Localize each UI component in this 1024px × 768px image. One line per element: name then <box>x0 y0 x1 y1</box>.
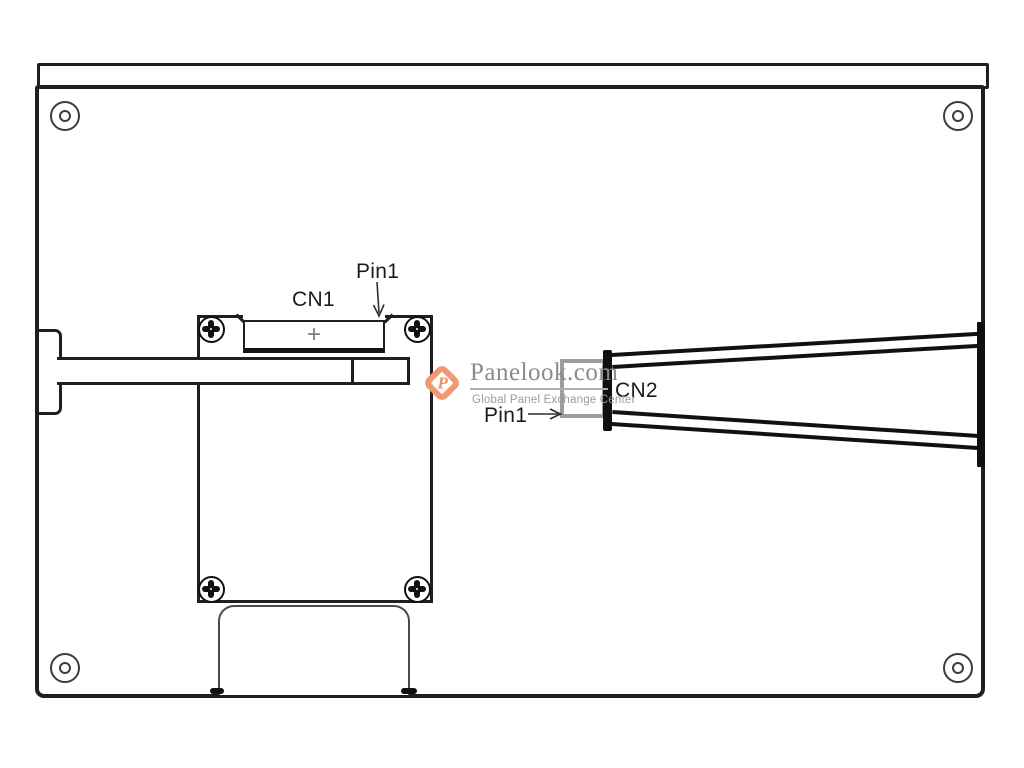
watermark-title: Panelook.com <box>470 360 618 385</box>
screw-icon <box>404 576 431 603</box>
cn1-connector: + <box>243 320 385 353</box>
mounting-hole-icon <box>50 101 80 131</box>
pin1-label-cn2: Pin1 <box>484 405 527 426</box>
panel-back-cover <box>35 85 985 698</box>
mounting-hole-inner <box>952 662 964 674</box>
mounting-hole-inner <box>59 662 71 674</box>
lower-cover-outline <box>218 605 410 695</box>
screw-icon <box>198 576 225 603</box>
lamp-cable-bar <box>57 357 410 385</box>
arrow-down-icon <box>368 281 390 319</box>
lamp-bar-divider <box>351 359 354 383</box>
mounting-hole-icon <box>943 101 973 131</box>
arrow-right-icon <box>526 405 566 423</box>
mounting-hole-inner <box>952 110 964 122</box>
screw-icon <box>198 316 225 343</box>
pin1-label-cn1: Pin1 <box>356 261 399 282</box>
screw-icon <box>404 316 431 343</box>
mounting-hole-icon <box>943 653 973 683</box>
watermark-subtitle: Global Panel Exchange Center <box>472 395 636 407</box>
panel-rear-drawing: + CN1 Pin1 CN2 Pin1 P Panelook.com Globa… <box>0 0 1024 768</box>
cable-edge-anchor <box>977 322 985 467</box>
mounting-hole-inner <box>59 110 71 122</box>
cover-tab <box>210 688 224 694</box>
cover-tab <box>401 688 417 694</box>
panelook-logo-letter: P <box>435 375 451 393</box>
mounting-hole-icon <box>50 653 80 683</box>
watermark-divider <box>470 388 608 390</box>
cn1-polarity-mark: + <box>307 323 321 347</box>
cn1-label: CN1 <box>292 289 335 310</box>
